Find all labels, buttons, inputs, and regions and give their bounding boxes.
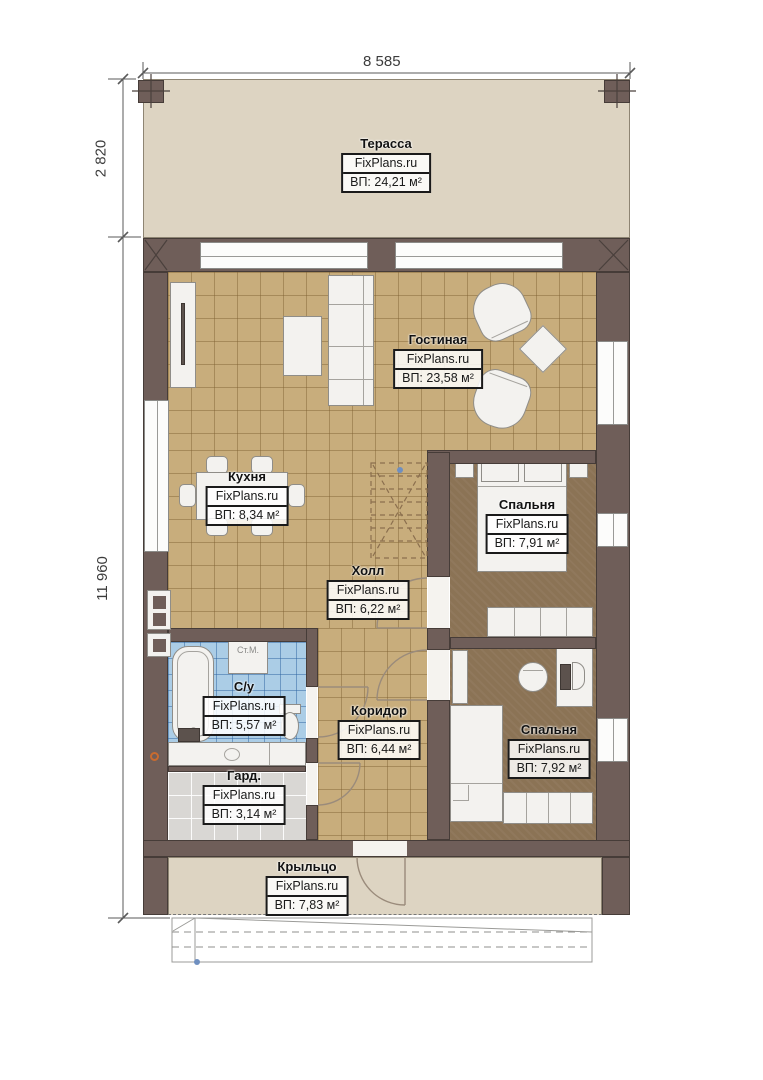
watermark: FixPlans.ru <box>329 582 408 599</box>
room-label-wardrobe: Гард. FixPlans.ru ВП: 3,14 м² <box>203 768 286 825</box>
wall-hall-bedrooms <box>427 452 450 577</box>
bathroom-cabinet <box>178 728 200 742</box>
window-terrace-1 <box>200 242 368 269</box>
dim-house-depth: 11 960 <box>94 556 111 601</box>
watermark: FixPlans.ru <box>268 878 347 895</box>
room-name: Спальня <box>508 722 591 737</box>
wall-west <box>143 272 168 857</box>
room-area: ВП: 5,57 м² <box>205 715 284 734</box>
porch-wall-right <box>602 857 630 915</box>
desk-pc <box>560 664 571 690</box>
wardrobe-cabinet <box>503 792 593 824</box>
room-area: ВП: 6,44 м² <box>340 739 419 758</box>
room-label-terrace: Терасса FixPlans.ru ВП: 24,21 м² <box>341 136 431 193</box>
room-area: ВП: 24,21 м² <box>343 172 429 191</box>
vanity-counter <box>168 742 306 766</box>
terrace-post-right <box>604 80 630 103</box>
watermark: FixPlans.ru <box>510 741 589 758</box>
room-area: ВП: 6,22 м² <box>329 599 408 618</box>
wall-hall-bedrooms <box>427 700 450 840</box>
wall-bathroom-east <box>306 738 318 763</box>
watermark: FixPlans.ru <box>205 787 284 804</box>
desk-chair <box>518 662 548 692</box>
porch-wall-left <box>143 857 168 915</box>
window-living <box>597 341 628 425</box>
door-opening-bedroom2 <box>428 650 449 700</box>
wall-bathroom-east <box>306 628 318 687</box>
room-name: Терасса <box>341 136 431 151</box>
watermark: FixPlans.ru <box>340 722 419 739</box>
plumbing-symbol <box>150 752 159 761</box>
wall-bedroom1-north <box>427 450 596 464</box>
chimney-shaft <box>147 590 171 630</box>
watermark: FixPlans.ru <box>488 516 567 533</box>
room-area: ВП: 8,34 м² <box>208 505 287 524</box>
kitchen-chair <box>179 484 196 507</box>
watermark: FixPlans.ru <box>205 698 284 715</box>
room-name: Спальня <box>486 497 569 512</box>
door-opening-entrance <box>353 841 407 856</box>
washing-machine-label: Ст.М. <box>229 645 267 655</box>
room-label-corridor: Коридор FixPlans.ru ВП: 6,44 м² <box>338 703 421 760</box>
wardrobe-cabinet <box>487 607 593 637</box>
room-area: ВП: 3,14 м² <box>205 804 284 823</box>
room-label-bedroom2: Спальня FixPlans.ru ВП: 7,92 м² <box>508 722 591 779</box>
window-kitchen <box>144 400 169 552</box>
room-label-kitchen: Кухня FixPlans.ru ВП: 8,34 м² <box>206 469 289 526</box>
room-name: Крыльцо <box>266 859 349 874</box>
room-name: Коридор <box>338 703 421 718</box>
dim-width: 8 585 <box>363 53 401 70</box>
kitchen-chair <box>288 484 305 507</box>
door-opening-wardrobe <box>307 763 317 805</box>
steps-marker-icon <box>194 959 200 965</box>
room-name: Гостиная <box>393 332 483 347</box>
wall-wardrobe-east <box>306 805 318 840</box>
watermark: FixPlans.ru <box>208 488 287 505</box>
dim-terrace-depth: 2 820 <box>92 140 109 178</box>
room-area: ВП: 23,58 м² <box>395 368 481 387</box>
sofa <box>328 275 374 406</box>
door-leaf-bedroom2 <box>452 650 468 704</box>
room-area: ВП: 7,83 м² <box>268 895 347 914</box>
floor-plan: Ст.М. <box>0 0 763 1080</box>
wall-hall-bedrooms <box>427 628 450 650</box>
chimney-shaft <box>147 633 171 657</box>
room-name: С/у <box>203 679 286 694</box>
coffee-table <box>283 316 322 376</box>
porch-floor <box>168 857 602 915</box>
desk-monitor <box>572 662 585 690</box>
window-bedroom1 <box>597 513 628 547</box>
wall-bedroom-divider <box>450 637 596 649</box>
room-area: ВП: 7,91 м² <box>488 533 567 552</box>
room-label-bathroom: С/у FixPlans.ru ВП: 5,57 м² <box>203 679 286 736</box>
bed-single <box>450 705 503 822</box>
door-opening-bedroom1 <box>428 577 449 628</box>
washing-machine: Ст.М. <box>228 641 268 674</box>
room-name: Кухня <box>206 469 289 484</box>
room-label-living: Гостиная FixPlans.ru ВП: 23,58 м² <box>393 332 483 389</box>
room-name: Холл <box>327 563 410 578</box>
window-terrace-2 <box>395 242 563 269</box>
window-bedroom2 <box>597 718 628 762</box>
wall-bathroom-north <box>168 628 318 642</box>
door-opening-bathroom <box>307 687 317 738</box>
watermark: FixPlans.ru <box>395 351 481 368</box>
entrance-steps <box>172 918 592 962</box>
terrace-post-left <box>138 80 164 103</box>
room-label-bedroom1: Спальня FixPlans.ru ВП: 7,91 м² <box>486 497 569 554</box>
room-label-hall: Холл FixPlans.ru ВП: 6,22 м² <box>327 563 410 620</box>
room-area: ВП: 7,92 м² <box>510 758 589 777</box>
room-label-porch: Крыльцо FixPlans.ru ВП: 7,83 м² <box>266 859 349 916</box>
watermark: FixPlans.ru <box>343 155 429 172</box>
tv <box>181 303 185 365</box>
room-name: Гард. <box>203 768 286 783</box>
